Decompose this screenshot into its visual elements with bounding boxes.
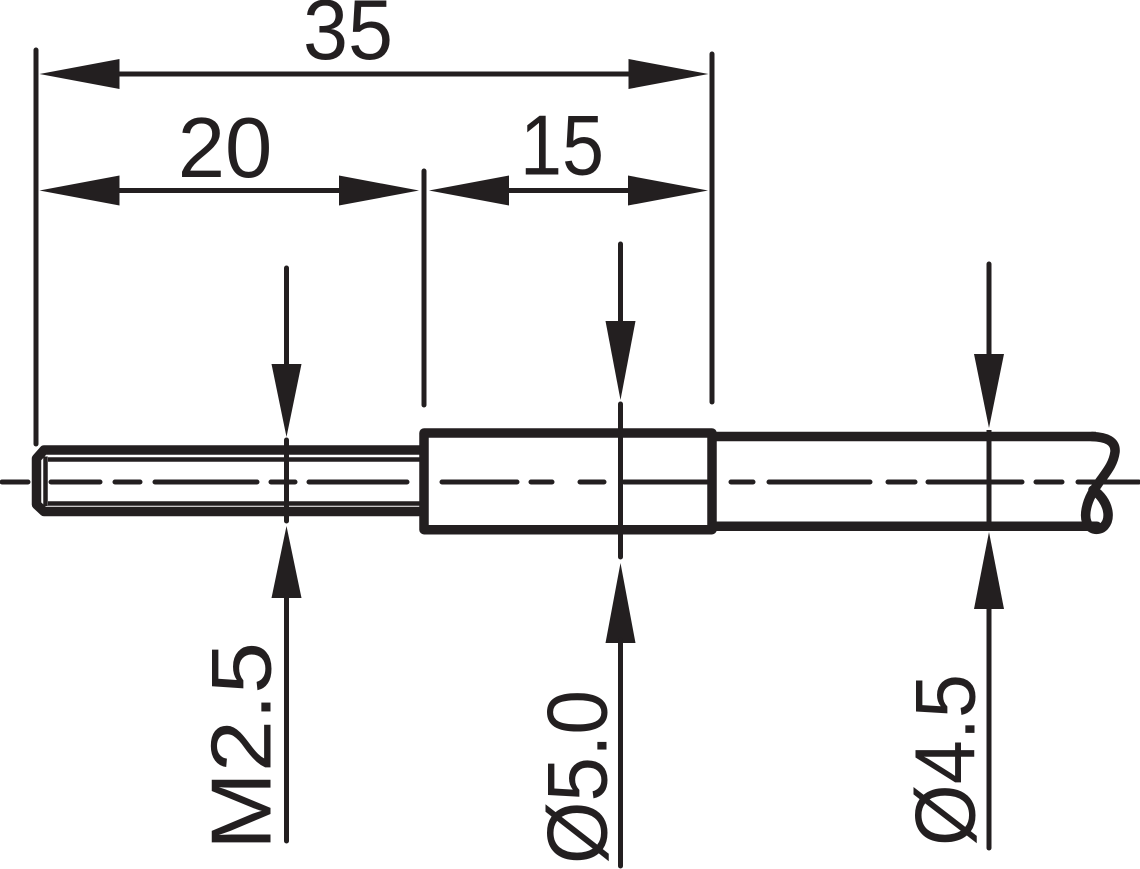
- svg-text:15: 15: [520, 99, 604, 194]
- svg-text:Ø4.5: Ø4.5: [899, 674, 994, 846]
- svg-text:M2.5: M2.5: [195, 642, 290, 850]
- svg-text:35: 35: [303, 0, 393, 78]
- svg-text:20: 20: [178, 101, 273, 196]
- svg-text:Ø5.0: Ø5.0: [531, 690, 626, 864]
